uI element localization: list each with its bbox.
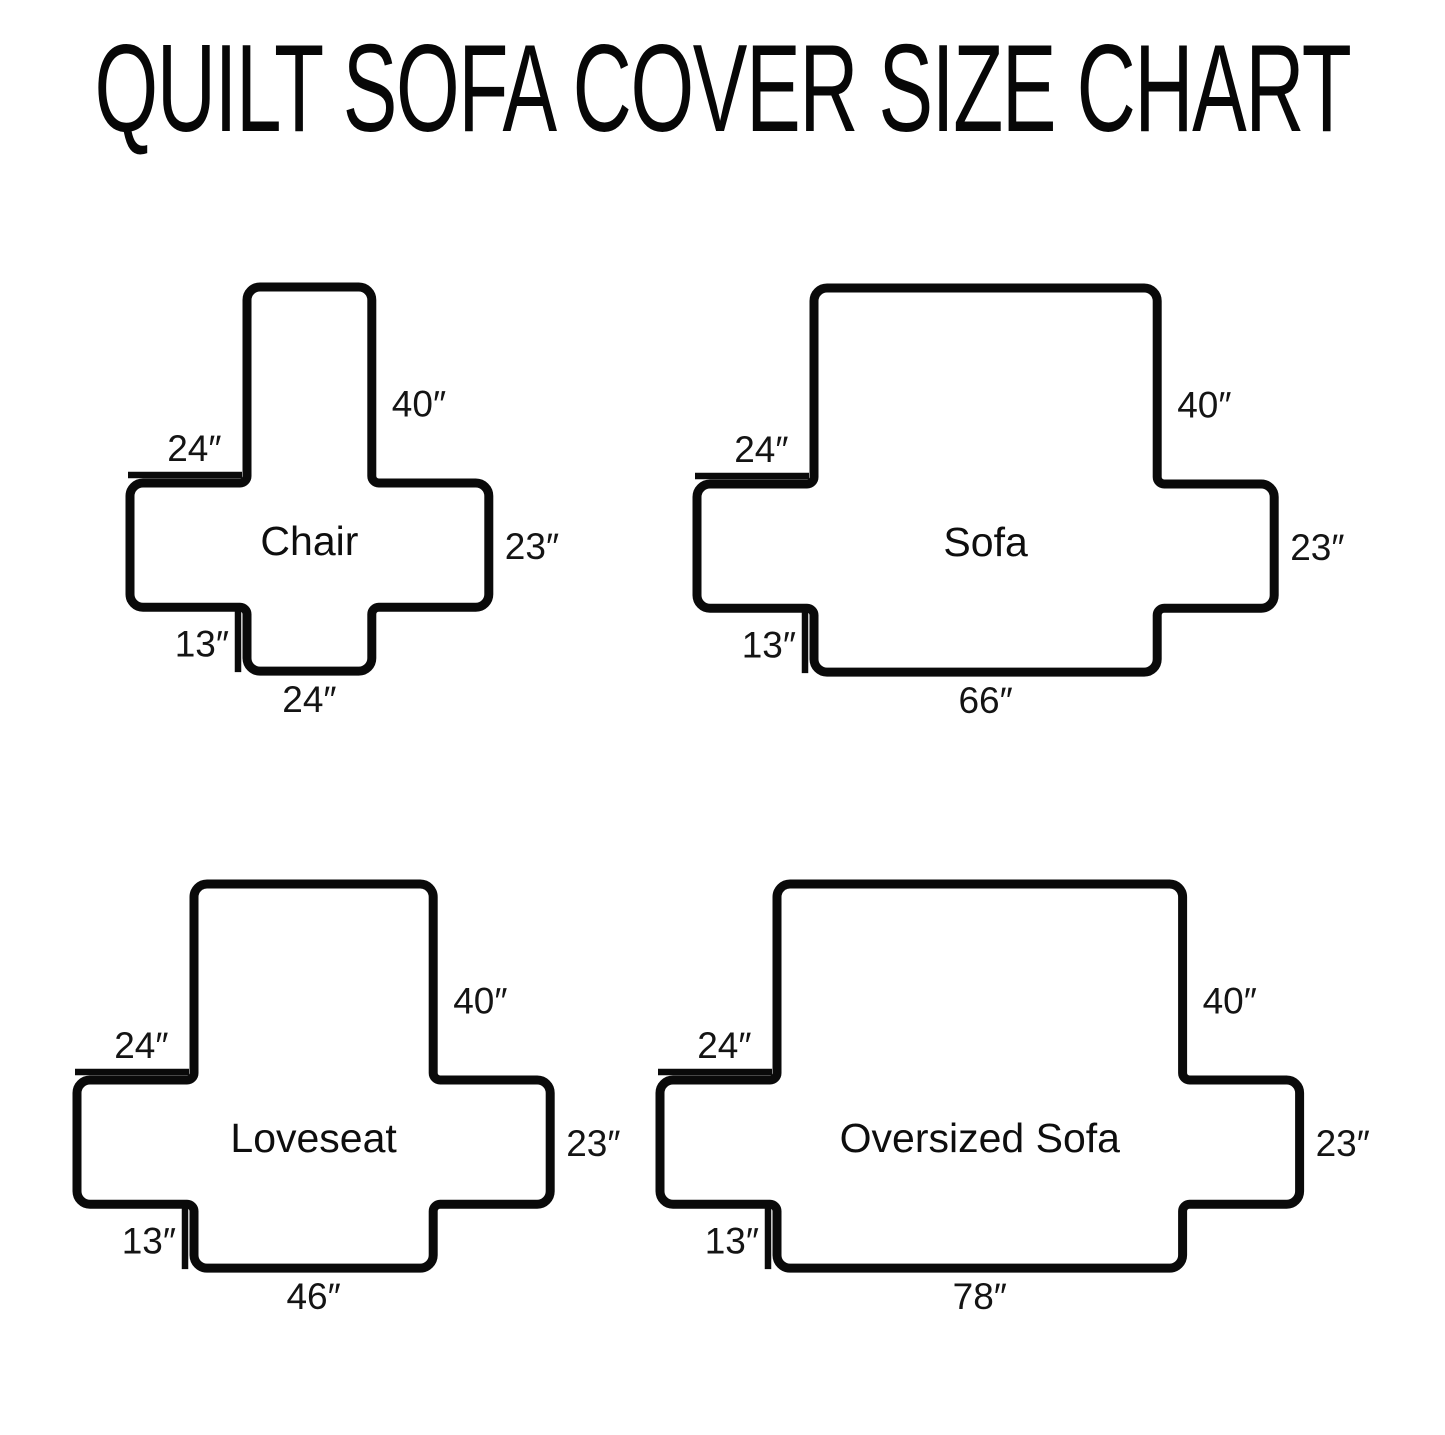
- arm-top-label: 24″: [697, 1025, 751, 1066]
- chair-svg: 40″24″23″13″24″Chair: [120, 277, 614, 732]
- furniture-name-label: Oversized Sofa: [840, 1115, 1120, 1161]
- seat-side-label: 23″: [566, 1123, 620, 1164]
- seat-side-label: 23″: [1316, 1123, 1370, 1164]
- page-title: QUILT SOFA COVER SIZE CHART: [95, 18, 1351, 160]
- back-height-label: 40″: [392, 383, 446, 424]
- diagram-oversized-sofa: 40″24″23″13″78″Oversized Sofa: [650, 874, 1425, 1329]
- bottom-width-label: 78″: [953, 1276, 1007, 1317]
- chair-shape-group: 40″24″23″13″24″Chair: [128, 287, 559, 720]
- seat-side-label: 23″: [505, 526, 559, 567]
- front-drop-label: 13″: [742, 624, 796, 665]
- arm-top-label: 24″: [167, 428, 221, 469]
- cover-outline: [77, 884, 550, 1268]
- size-chart-page: QUILT SOFA COVER SIZE CHART 40″24″23″13″…: [0, 0, 1445, 1435]
- bottom-width-label: 24″: [282, 679, 336, 720]
- diagram-chair: 40″24″23″13″24″Chair: [120, 277, 614, 732]
- loveseat-shape-group: 40″24″23″13″46″Loveseat: [75, 884, 620, 1317]
- seat-side-label: 23″: [1290, 527, 1344, 568]
- oversized-sofa-svg: 40″24″23″13″78″Oversized Sofa: [650, 874, 1425, 1329]
- arm-top-label: 24″: [114, 1025, 168, 1066]
- furniture-name-label: Loveseat: [230, 1115, 397, 1161]
- furniture-name-label: Chair: [260, 518, 358, 564]
- cover-outline: [660, 884, 1300, 1268]
- cover-outline: [697, 288, 1274, 672]
- bottom-width-label: 46″: [286, 1276, 340, 1317]
- cover-outline: [130, 287, 489, 671]
- furniture-name-label: Sofa: [943, 519, 1028, 565]
- front-drop-label: 13″: [122, 1220, 176, 1261]
- header: QUILT SOFA COVER SIZE CHART: [0, 18, 1445, 160]
- back-height-label: 40″: [1177, 384, 1231, 425]
- diagram-sofa: 40″24″23″13″66″Sofa: [687, 278, 1400, 733]
- loveseat-svg: 40″24″23″13″46″Loveseat: [67, 874, 676, 1329]
- sofa-svg: 40″24″23″13″66″Sofa: [687, 278, 1400, 733]
- diagram-loveseat: 40″24″23″13″46″Loveseat: [67, 874, 676, 1329]
- arm-top-label: 24″: [734, 429, 788, 470]
- sofa-shape-group: 40″24″23″13″66″Sofa: [695, 288, 1344, 721]
- bottom-width-label: 66″: [958, 680, 1012, 721]
- front-drop-label: 13″: [705, 1220, 759, 1261]
- back-height-label: 40″: [453, 980, 507, 1021]
- back-height-label: 40″: [1203, 980, 1257, 1021]
- oversized-sofa-shape-group: 40″24″23″13″78″Oversized Sofa: [658, 884, 1370, 1317]
- front-drop-label: 13″: [175, 623, 229, 664]
